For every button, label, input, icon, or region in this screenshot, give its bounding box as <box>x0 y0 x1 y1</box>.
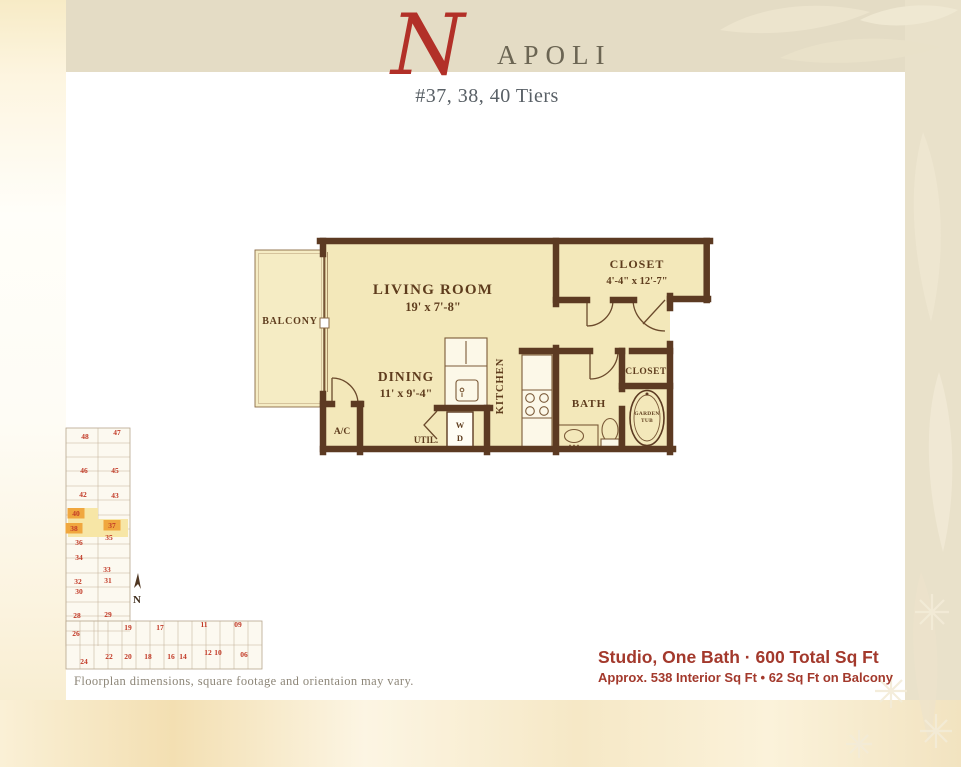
unit-number: 47 <box>113 428 121 437</box>
unit-number: 28 <box>73 611 81 620</box>
balcony-area <box>255 250 325 407</box>
kitchen-counter-stove <box>522 355 552 451</box>
unit-number: 46 <box>80 466 88 475</box>
ac-label: A/C <box>334 427 351 437</box>
washer-dryer: W D <box>447 412 473 448</box>
disclaimer-text: Floorplan dimensions, square footage and… <box>74 674 414 689</box>
north-label: N <box>133 594 141 606</box>
unit-number: 26 <box>72 629 80 638</box>
summary-line-2: Approx. 538 Interior Sq Ft • 62 Sq Ft on… <box>598 670 893 685</box>
unit-number: 30 <box>75 587 83 596</box>
unit-number: 42 <box>79 490 87 499</box>
util-label: UTIL. <box>414 435 438 445</box>
unit-number: 17 <box>156 623 164 632</box>
building-outline <box>66 428 262 669</box>
compass: N <box>133 573 141 606</box>
unit-number: 16 <box>167 652 175 661</box>
decor-right-band <box>905 0 961 767</box>
kitchen-label: KITCHEN <box>495 358 506 415</box>
decor-bottom-band <box>0 700 961 767</box>
unit-number: 37 <box>108 521 116 530</box>
title-initial-letter: N <box>389 0 467 92</box>
unit-number: 18 <box>144 652 152 661</box>
unit-number: 33 <box>103 565 111 574</box>
unit-number: 20 <box>124 652 132 661</box>
unit-number: 40 <box>72 509 80 518</box>
living-room-dims: 19' x 7'-8" <box>405 300 461 314</box>
closet-large-label: CLOSET <box>610 257 665 271</box>
unit-number: 45 <box>111 466 119 475</box>
unit-number: 12 <box>204 648 212 657</box>
page-title: APOLI <box>497 40 612 71</box>
unit-number: 48 <box>81 432 89 441</box>
unit-number: 32 <box>74 577 82 586</box>
unit-number: 35 <box>105 533 113 542</box>
washer-label: W <box>456 420 465 430</box>
floorplan-sheet: N APOLI #37, 38, 40 Tiers <box>0 0 961 767</box>
unit-summary: Studio, One Bath · 600 Total Sq Ft Appro… <box>598 647 893 685</box>
dining-label: DINING <box>378 369 434 384</box>
site-map: 4847464542434038373635343332313028292624… <box>60 423 272 685</box>
title-initial-script: N <box>373 0 505 92</box>
closet-small-label: CLOSET <box>625 367 667 377</box>
unit-number: 09 <box>234 620 242 629</box>
decor-left-band <box>0 0 66 767</box>
garden-tub-label-1: GARDEN <box>634 411 659 417</box>
unit-number: 14 <box>179 652 187 661</box>
unit-number: 36 <box>75 538 83 547</box>
unit-number: 31 <box>104 576 112 585</box>
garden-tub-label-2: TUB <box>641 418 653 424</box>
unit-number: 19 <box>124 623 132 632</box>
closet-large-dims: 4'-4" x 12'-7" <box>606 276 667 287</box>
unit-number: 10 <box>214 648 222 657</box>
kitchen-counter-sink <box>445 338 487 408</box>
dining-dims: 11' x 9'-4" <box>380 386 433 400</box>
unit-number: 11 <box>200 620 207 629</box>
unit-number: 24 <box>80 657 88 666</box>
bath-label: BATH <box>572 398 606 410</box>
living-room-label: LIVING ROOM <box>373 282 493 298</box>
unit-number: 06 <box>240 650 248 659</box>
north-arrow-icon <box>134 573 141 589</box>
unit-number: 43 <box>111 491 119 500</box>
dryer-label: D <box>457 433 463 443</box>
balcony-label: BALCONY <box>262 316 318 327</box>
unit-number: 38 <box>70 524 78 533</box>
floorplan-drawing: W D <box>250 234 715 466</box>
unit-number: 29 <box>104 610 112 619</box>
unit-number: 34 <box>75 553 83 562</box>
page-subtitle: #37, 38, 40 Tiers <box>397 85 577 108</box>
summary-line-1: Studio, One Bath · 600 Total Sq Ft <box>598 647 893 668</box>
unit-number: 22 <box>105 652 113 661</box>
